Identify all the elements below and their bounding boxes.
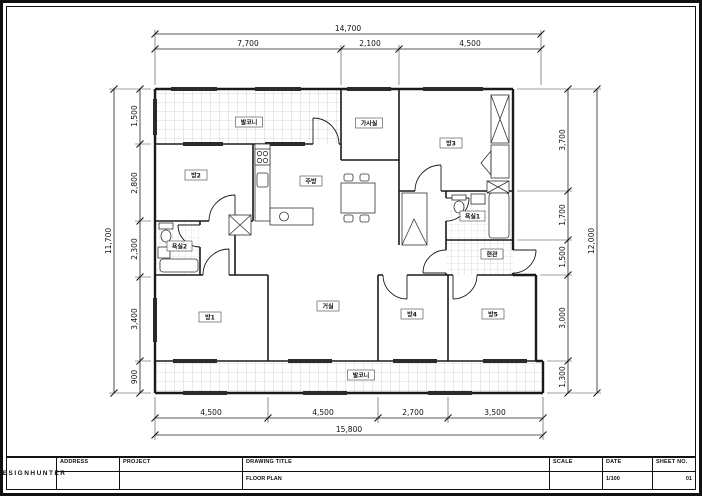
dim-top-seg-1: 2,100 <box>359 39 381 48</box>
room-label-balcony-bottom: 발코니 <box>348 370 375 380</box>
washbasin <box>471 194 485 204</box>
entrance-label: 현관 <box>486 251 498 259</box>
dim-top-overall: 14,700 <box>335 24 361 33</box>
dim-right-overall: 12,000 <box>587 228 596 254</box>
stove <box>255 149 270 165</box>
dim-left-seg-4: 900 <box>130 370 139 385</box>
dim-right-seg-1: 1,700 <box>558 204 567 226</box>
dim-right-seg-0: 3,700 <box>558 129 567 151</box>
room-label-bedroom3: 방3 <box>440 138 462 148</box>
title-block: DESIGNHUNTER ADDRESS PROJECT DRAWING TIT… <box>7 456 695 489</box>
bedroom2-label: 방2 <box>191 172 201 180</box>
title-block-project-cell: PROJECT <box>119 458 242 489</box>
bathtub <box>160 259 198 272</box>
scale-label: SCALE <box>550 458 602 472</box>
address-label: ADDRESS <box>57 458 119 472</box>
utility-room-label: 가사실 <box>361 120 378 128</box>
sheet-no-label: SHEET NO. <box>653 458 695 472</box>
dim-right-seg-2: 1,500 <box>558 246 567 268</box>
bathroom2-label: 욕실2 <box>172 243 187 251</box>
room-label-bedroom5: 방5 <box>482 309 504 319</box>
dim-left-seg-3: 3,400 <box>130 308 139 330</box>
bathroom1-label: 욕실1 <box>465 213 480 221</box>
dim-right-seg-4: 1,300 <box>558 366 567 388</box>
room-label-living: 거실 <box>317 301 339 311</box>
cabinet <box>491 145 509 178</box>
title-block-drawing-title-cell: DRAWING TITLE FLOOR PLAN <box>242 458 549 489</box>
dim-bottom-seg-3: 3,500 <box>484 408 506 417</box>
room-label-bedroom2: 방2 <box>185 170 207 180</box>
floor-plan: 발코니 가사실 방3 방2 주방 <box>153 87 543 395</box>
kitchen-island <box>270 208 313 225</box>
title-block-address-cell: ADDRESS <box>56 458 119 489</box>
balcony-bottom-label: 발코니 <box>353 372 370 380</box>
room-label-bedroom4: 방4 <box>401 309 423 319</box>
room-label-bathroom2: 욕실2 <box>167 241 192 251</box>
title-block-date-cell: DATE 1/100 <box>602 458 652 489</box>
title-block-sheet-cell: SHEET NO. 01 <box>652 458 695 489</box>
dim-bottom-seg-1: 4,500 <box>312 408 334 417</box>
drawing-sheet: 발코니 가사실 방3 방2 주방 <box>0 0 702 496</box>
room-label-utility: 가사실 <box>356 118 383 128</box>
bedroom3-label: 방3 <box>446 140 456 148</box>
toilet-tank <box>159 223 173 229</box>
room-label-kitchen: 주방 <box>300 176 322 186</box>
living-room-label: 거실 <box>322 303 334 311</box>
balcony-top-label: 발코니 <box>241 119 258 127</box>
toilet <box>161 230 171 242</box>
dim-left-overall: 11,700 <box>104 228 113 254</box>
bedroom5-label: 방5 <box>488 311 498 319</box>
chair <box>360 215 369 222</box>
toilet-tank <box>452 195 466 200</box>
drawing-title-value: FLOOR PLAN <box>243 472 549 482</box>
scale-ratio-value: 1/100 <box>603 472 652 482</box>
drawing-title-label: DRAWING TITLE <box>243 458 549 472</box>
dim-top-seg-0: 7,700 <box>237 39 259 48</box>
dim-right-seg-3: 3,000 <box>558 307 567 329</box>
chair <box>344 174 353 181</box>
chair <box>360 174 369 181</box>
room-label-bedroom1: 방1 <box>199 312 221 322</box>
date-label: DATE <box>603 458 652 472</box>
title-block-brand-cell: DESIGNHUNTER <box>7 458 56 489</box>
bathtub <box>489 193 509 238</box>
island-sink <box>280 212 289 221</box>
counter-sink <box>257 173 268 187</box>
address-value <box>57 472 119 476</box>
dining-table <box>341 183 375 213</box>
dim-bottom-overall: 15,800 <box>336 425 362 434</box>
sheet-no-value: 01 <box>653 472 695 482</box>
bedroom1-label: 방1 <box>205 314 215 322</box>
room-label-bathroom1: 욕실1 <box>460 211 485 221</box>
dim-bottom-seg-2: 2,700 <box>402 408 424 417</box>
floor-plan-canvas: 발코니 가사실 방3 방2 주방 <box>3 3 702 458</box>
project-value <box>120 472 242 476</box>
scale-value <box>550 472 602 476</box>
dim-left-seg-1: 2,800 <box>130 172 139 194</box>
room-label-balcony-top: 발코니 <box>236 117 263 127</box>
dim-left-seg-0: 1,500 <box>130 105 139 127</box>
bedroom4-label: 방4 <box>407 311 417 319</box>
project-label: PROJECT <box>120 458 242 472</box>
kitchen-label: 주방 <box>305 178 317 186</box>
dim-bottom-seg-0: 4,500 <box>200 408 222 417</box>
dim-top-seg-2: 4,500 <box>459 39 481 48</box>
dim-left-seg-2: 2,300 <box>130 238 139 260</box>
room-label-entrance: 현관 <box>481 249 503 259</box>
title-block-scale-cell: SCALE <box>549 458 602 489</box>
chair <box>344 215 353 222</box>
